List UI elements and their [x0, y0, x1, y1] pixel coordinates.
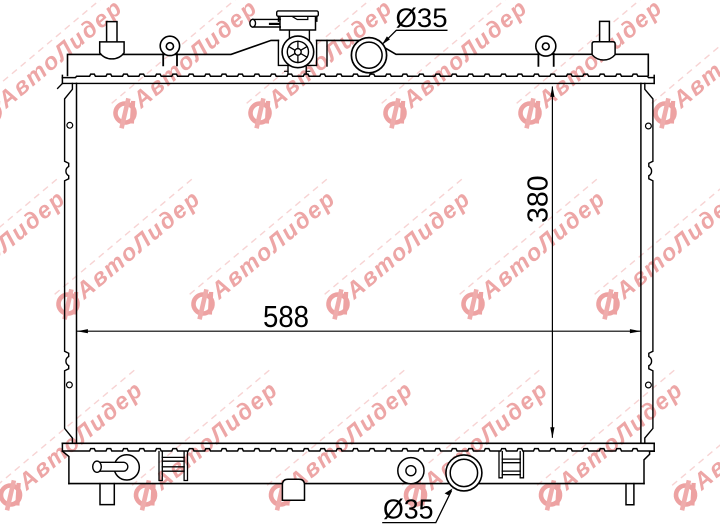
svg-text:380: 380 — [523, 175, 555, 223]
svg-text:588: 588 — [263, 300, 309, 334]
svg-text:Ø35: Ø35 — [396, 3, 448, 33]
svg-text:Ø35: Ø35 — [383, 494, 434, 525]
